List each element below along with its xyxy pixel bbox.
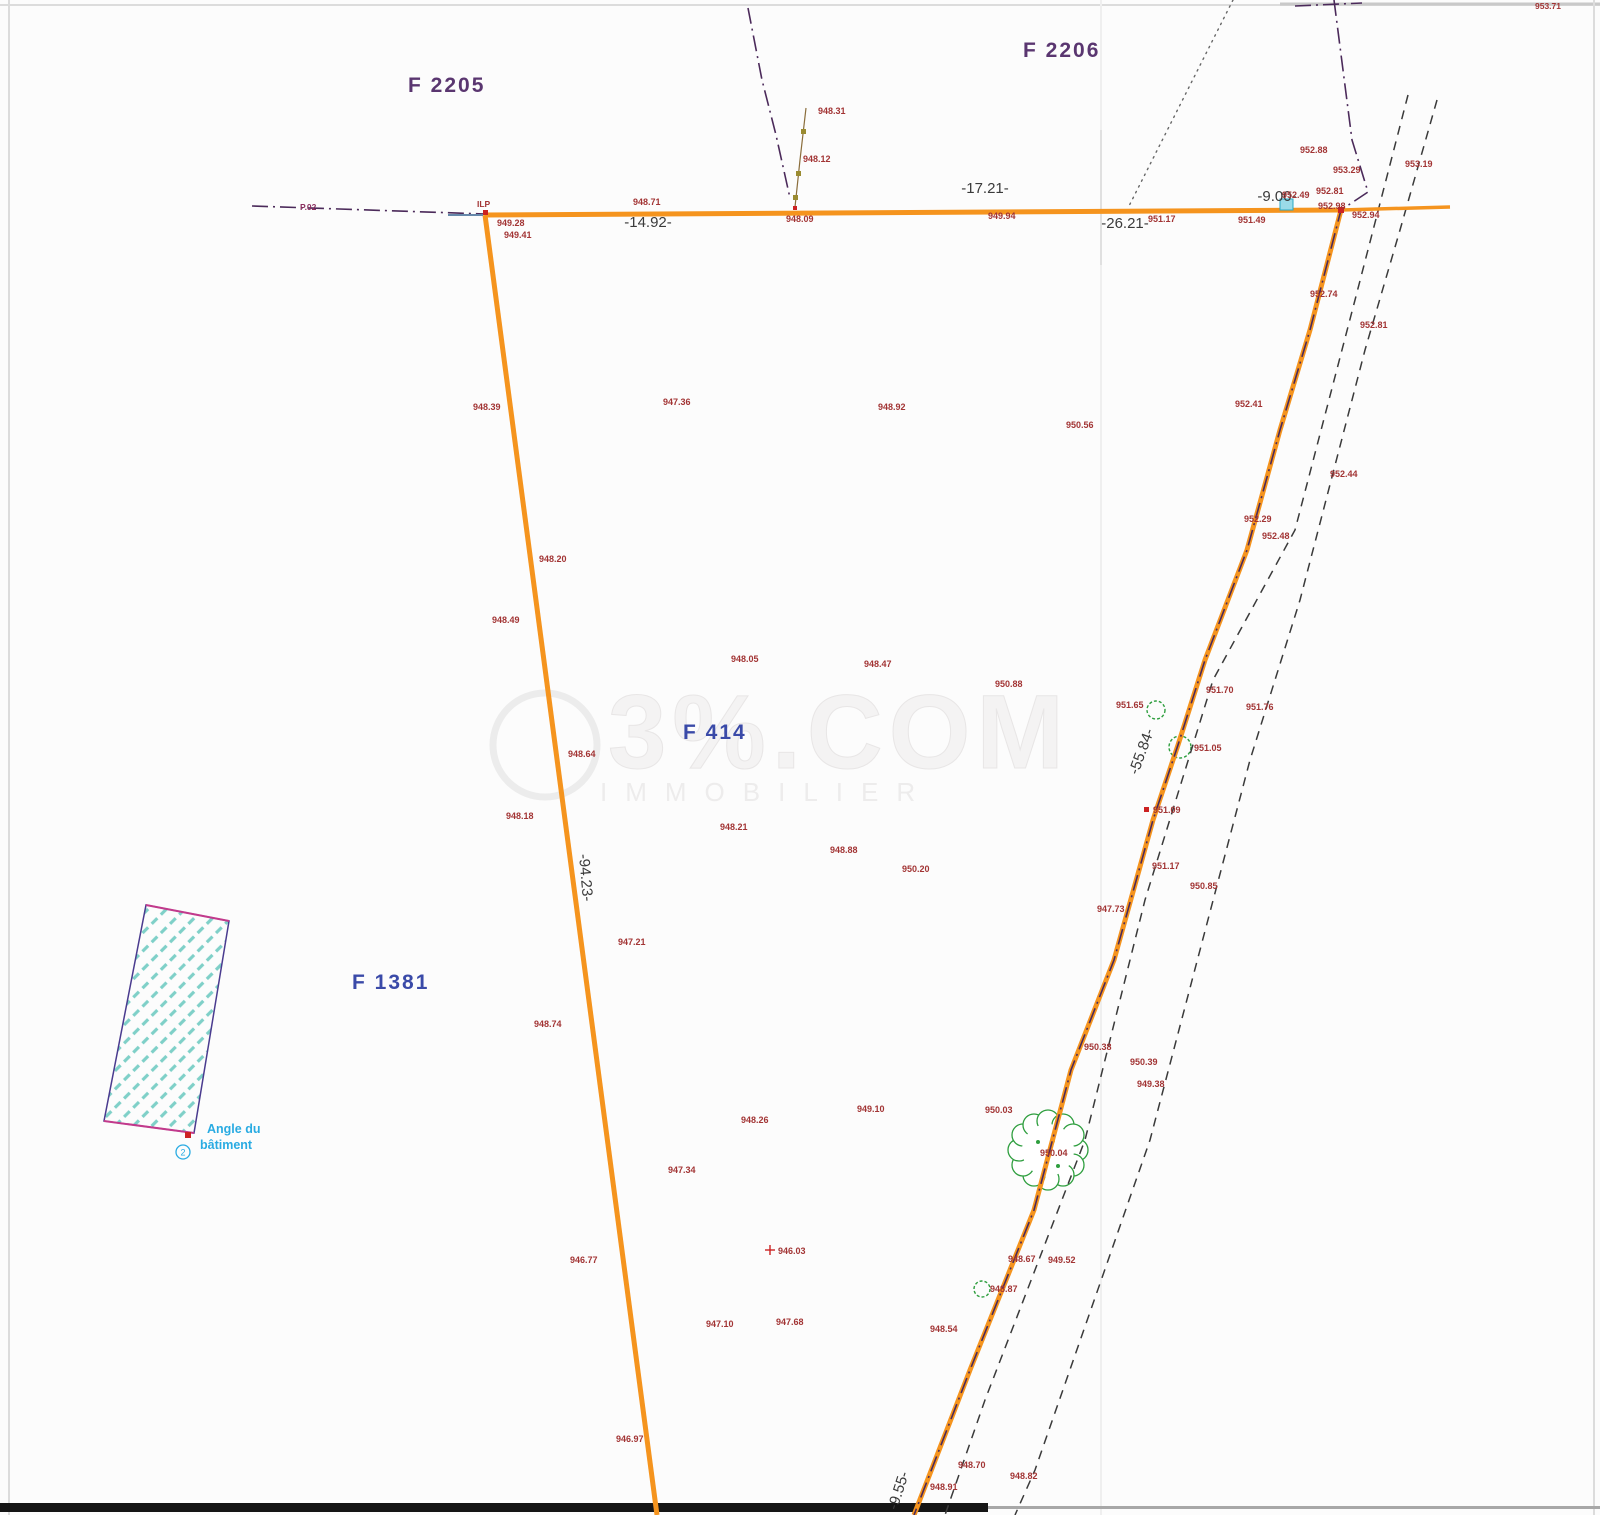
spot-elevation: 950.38: [1084, 1042, 1112, 1052]
misc-label: ILP: [477, 199, 491, 209]
spot-elevation: 948.74: [534, 1019, 562, 1029]
spot-elevation: 952.98: [1318, 201, 1346, 211]
spot-elevation: 952.94: [1352, 210, 1380, 220]
spot-elevation: 947.10: [706, 1319, 734, 1329]
spot-elevation: 948.71: [633, 197, 661, 207]
spot-elevation: 948.26: [741, 1115, 769, 1125]
shrub-icon: [1147, 701, 1165, 719]
scan-bottom-bar-light: [988, 1506, 1600, 1509]
spot-elevation: 948.09: [786, 214, 814, 224]
spot-elevation: 951.17: [1152, 861, 1180, 871]
watermark-sub-text: IMMOBILIER: [600, 777, 933, 807]
spot-elevation: 948.54: [930, 1324, 958, 1334]
spot-elevation: 948.05: [731, 654, 759, 664]
spot-elevation: 952.48: [1262, 531, 1290, 541]
spot-elevation: 952.88: [1300, 145, 1328, 155]
spot-elevation: 952.81: [1360, 320, 1388, 330]
spot-elevation: 949.28: [497, 218, 525, 228]
spot-elevation: 948.20: [539, 554, 567, 564]
spot-elevation: 949.41: [504, 230, 532, 240]
distance-label: -14.92-: [624, 214, 672, 231]
boundary-point-marker: [793, 206, 797, 210]
spot-elevation: 948.91: [930, 1482, 958, 1492]
spot-elevation: 948.67: [1008, 1254, 1036, 1264]
spot-elevation: 950.04: [1040, 1148, 1068, 1158]
spot-elevation: 951.76: [1246, 702, 1274, 712]
spot-elevation: 953.29: [1333, 165, 1361, 175]
parcel-boundary: [485, 207, 1450, 1515]
dotted-tie-line: [1128, 0, 1233, 208]
spot-elevation: 949.94: [988, 211, 1016, 221]
misc-labels: P.02ILP953.71: [300, 1, 1561, 212]
boundary-corner-marker: [483, 210, 488, 215]
boundary-left: [485, 215, 657, 1515]
building-corner-marker: [185, 1132, 191, 1138]
scan-bottom-bar: [0, 1503, 988, 1512]
fence-post-marker: [801, 129, 806, 134]
spot-elevation: 946.97: [616, 1434, 644, 1444]
cross-marker: [765, 1245, 775, 1255]
spot-elevation: 947.36: [663, 397, 691, 407]
spot-elevation: 948.49: [492, 615, 520, 625]
building-note-line2: bâtiment: [200, 1138, 253, 1152]
spot-elevation: 946.03: [778, 1246, 806, 1256]
survey-plan-canvas: 3%.COM IMMOBILIER: [0, 0, 1600, 1515]
spot-elevation: 952.41: [1235, 399, 1263, 409]
misc-label: P.02: [300, 202, 317, 212]
spot-elevation: 953.19: [1405, 159, 1433, 169]
spot-elevation: 950.56: [1066, 420, 1094, 430]
distance-labels: -14.92--17.21--26.21--9.00--94.23--55.84…: [575, 180, 1297, 1512]
road-edge-outer: [1015, 100, 1437, 1515]
spot-elevation: 946.77: [570, 1255, 598, 1265]
spot-elevation: 952.74: [1310, 289, 1338, 299]
boundary-right: [914, 210, 1341, 1515]
spot-elevation: 948.18: [506, 811, 534, 821]
spot-elevation: 950.88: [995, 679, 1023, 689]
watermark: 3%.COM IMMOBILIER: [493, 674, 1070, 807]
parcel-label: F 2205: [408, 74, 485, 97]
spot-elevation: 952.81: [1316, 186, 1344, 196]
parcel-label: F 414: [683, 721, 747, 744]
distance-label: -94.23-: [575, 853, 596, 902]
circled-point-number: 2: [180, 1148, 185, 1158]
dashdot-north: [748, 8, 790, 198]
spot-elevation: 950.20: [902, 864, 930, 874]
distance-label: -26.21-: [1101, 215, 1149, 232]
building-note-line1: Angle du: [207, 1122, 260, 1136]
spot-elevation: 948.82: [1010, 1471, 1038, 1481]
spot-elevation: 948.47: [864, 659, 892, 669]
spot-elevation: 947.73: [1097, 904, 1125, 914]
building-polygon: [104, 905, 229, 1133]
spot-elevation: 949.10: [857, 1104, 885, 1114]
parcel-label: F 2206: [1023, 39, 1100, 62]
spot-elevation: 951.05: [1194, 743, 1222, 753]
spot-elevation: 949.38: [1137, 1079, 1165, 1089]
parcel-label: F 1381: [352, 971, 429, 994]
spot-elevation: 952.29: [1244, 514, 1272, 524]
spot-elevation: 948.87: [990, 1284, 1018, 1294]
watermark-main-text: 3%.COM: [608, 674, 1070, 791]
building-footprint: [104, 905, 229, 1133]
distance-label: -55.84-: [1126, 726, 1158, 776]
fence-post-marker: [793, 195, 798, 200]
spot-elevation: 947.21: [618, 937, 646, 947]
spot-elevation: 948.70: [958, 1460, 986, 1470]
spot-elevation: 947.34: [668, 1165, 696, 1175]
shrub-icon: [974, 1281, 990, 1297]
spot-elevation: 952.49: [1282, 190, 1310, 200]
spot-elevation: 951.09: [1153, 805, 1181, 815]
spot-elevation: 948.88: [830, 845, 858, 855]
spot-elevation: 948.21: [720, 822, 748, 832]
dashdot-west: [252, 206, 485, 214]
spot-elevation: 951.17: [1148, 214, 1176, 224]
spot-elevation: 951.70: [1206, 685, 1234, 695]
spot-elevation: 951.49: [1238, 215, 1266, 225]
distance-label: -17.21-: [961, 180, 1009, 197]
spot-elevation: 948.39: [473, 402, 501, 412]
boundary-top: [485, 210, 1341, 215]
spot-elevation: 948.12: [803, 154, 831, 164]
spot-elevation: 948.31: [818, 106, 846, 116]
spot-elevation: 951.65: [1116, 700, 1144, 710]
misc-label: 953.71: [1535, 1, 1561, 11]
spot-elevation: 949.52: [1048, 1255, 1076, 1265]
spot-elevation: 948.92: [878, 402, 906, 412]
spot-elevation: 947.68: [776, 1317, 804, 1327]
spot-elevation: 950.03: [985, 1105, 1013, 1115]
fence-post-marker: [796, 171, 801, 176]
spot-elevation: 952.44: [1330, 469, 1358, 479]
spot-elevation: 948.64: [568, 749, 596, 759]
watermark-logo-icon: [493, 693, 597, 797]
survey-point-marker: [1144, 807, 1149, 812]
spot-elevation: 950.85: [1190, 881, 1218, 891]
spot-elevation: 950.39: [1130, 1057, 1158, 1067]
survey-plan-page: 3%.COM IMMOBILIER: [0, 0, 1600, 1515]
